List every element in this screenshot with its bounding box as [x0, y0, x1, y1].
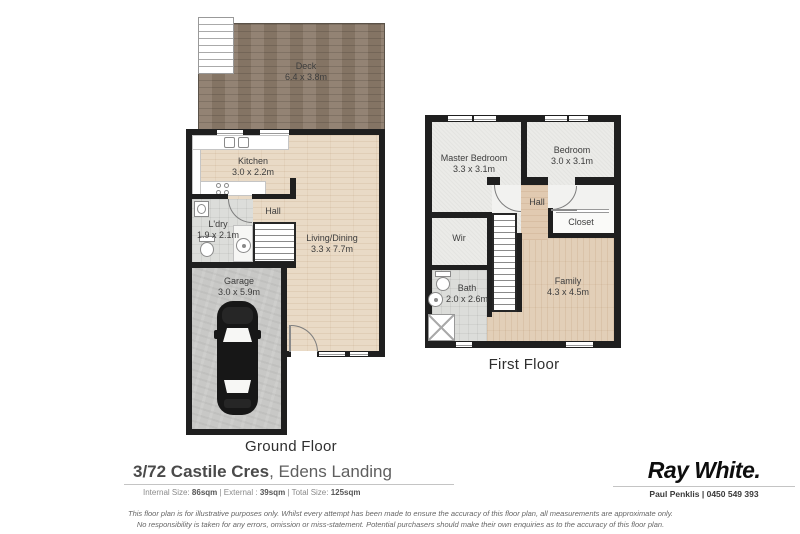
window [456, 342, 472, 347]
first-floor-stairs [492, 213, 517, 312]
size-summary: Internal Size: 86sqm | External : 39sqm … [143, 488, 361, 497]
room-name: Garage [218, 276, 260, 287]
wall [614, 115, 621, 348]
ground-stairs [253, 222, 296, 263]
window [474, 116, 496, 121]
wall [527, 177, 548, 185]
window [350, 352, 368, 356]
room-dims: 3.0 x 2.2m [232, 167, 274, 178]
bath-label: Bath 2.0 x 2.6m [446, 283, 488, 305]
front-door-leaf [289, 325, 291, 352]
ground-floor-title: Ground Floor [245, 438, 337, 455]
size-part: | External : [217, 488, 260, 497]
deck-stairs [198, 17, 234, 74]
washer-drum-icon [242, 244, 246, 248]
kitchen-sink-icon [224, 137, 235, 148]
living-label: Living/Dining 3.3 x 7.7m [306, 233, 358, 255]
deck-label: Deck 6.4 x 3.8m [285, 61, 327, 83]
room-name: Living/Dining [306, 233, 358, 244]
car-top-view [214, 298, 261, 418]
size-part: | Total Size: [285, 488, 331, 497]
floor-plan-page: Deck 6.4 x 3.8m Kitchen 3.0 x 2.2m [0, 0, 800, 534]
wall [281, 262, 287, 435]
sink-drain-icon [434, 298, 438, 302]
family-label: Family 4.3 x 4.5m [547, 276, 589, 298]
wall [487, 177, 500, 185]
room-name: Hall [529, 197, 545, 208]
wall [290, 178, 296, 199]
size-value: 39sqm [260, 488, 285, 497]
bedroom-door-leaf [551, 209, 577, 211]
room-name: Kitchen [232, 156, 274, 167]
first-hall-label: Hall [529, 197, 545, 208]
disclaimer-text: This floor plan is for illustrative purp… [13, 508, 788, 530]
divider-line [613, 486, 795, 487]
address-street: 3/72 Castile Cres [133, 462, 269, 481]
master-bedroom-label: Master Bedroom 3.3 x 3.1m [441, 153, 508, 175]
sliding-door [260, 130, 289, 135]
room-name: Wir [452, 233, 466, 244]
room-dims: 2.0 x 2.6m [446, 294, 488, 305]
window [569, 116, 588, 121]
room-dims: 3.0 x 5.9m [218, 287, 260, 298]
room-name: Hall [265, 206, 281, 217]
wall [517, 233, 522, 312]
first-floor-title: First Floor [489, 356, 560, 373]
kitchen-label: Kitchen 3.0 x 2.2m [232, 156, 274, 178]
disclaimer-line: No responsibility is taken for any error… [13, 519, 788, 530]
room-dims: 6.4 x 3.8m [285, 72, 327, 83]
bath-sink-icon [428, 292, 443, 307]
wall [432, 212, 492, 218]
garage-label: Garage 3.0 x 5.9m [218, 276, 260, 298]
cooktop-burner-icon [216, 183, 221, 188]
window [545, 116, 567, 121]
room-dims: 3.3 x 7.7m [306, 244, 358, 255]
first-hall-floor [521, 185, 548, 240]
window [319, 352, 345, 356]
room-name: Deck [285, 61, 327, 72]
ray-white-logo: Ray White. [613, 457, 795, 484]
room-name: Bedroom [551, 145, 593, 156]
room-dims: 4.3 x 4.5m [547, 287, 589, 298]
laundry-sink-bowl-icon [197, 204, 206, 214]
wall [379, 129, 385, 357]
shower-icon [428, 314, 455, 341]
size-part: Internal Size: [143, 488, 192, 497]
room-name: Master Bedroom [441, 153, 508, 164]
sliding-door [217, 130, 243, 135]
wir-label: Wir [452, 233, 466, 244]
room-dims: 3.3 x 3.1m [441, 164, 508, 175]
toilet-bowl-icon [200, 242, 214, 257]
size-value: 86sqm [192, 488, 217, 497]
room-name: L'dry [197, 219, 239, 230]
window [448, 116, 472, 121]
room-dims: 3.0 x 3.1m [551, 156, 593, 167]
divider-line [124, 484, 454, 485]
property-address: 3/72 Castile Cres, Edens Landing [133, 462, 392, 482]
kitchen-sink-icon [238, 137, 249, 148]
wall [521, 122, 527, 185]
laundry-label: L'dry 1.9 x 2.1m [197, 219, 239, 241]
address-suburb: , Edens Landing [269, 462, 392, 481]
room-dims: 1.9 x 2.1m [197, 230, 239, 241]
agent-contact: Paul Penklis | 0450 549 393 [613, 489, 795, 499]
window [566, 342, 593, 347]
wall [548, 233, 614, 238]
size-value: 125sqm [331, 488, 361, 497]
cooktop-burner-icon [224, 183, 229, 188]
disclaimer-line: This floor plan is for illustrative purp… [13, 508, 788, 519]
room-name: Closet [568, 217, 594, 228]
wall [186, 429, 287, 435]
closet-label: Closet [568, 217, 594, 228]
room-name: Bath [446, 283, 488, 294]
room-name: Family [547, 276, 589, 287]
bedroom-label: Bedroom 3.0 x 3.1m [551, 145, 593, 167]
wall [575, 177, 614, 185]
ground-hall-label: Hall [265, 206, 281, 217]
